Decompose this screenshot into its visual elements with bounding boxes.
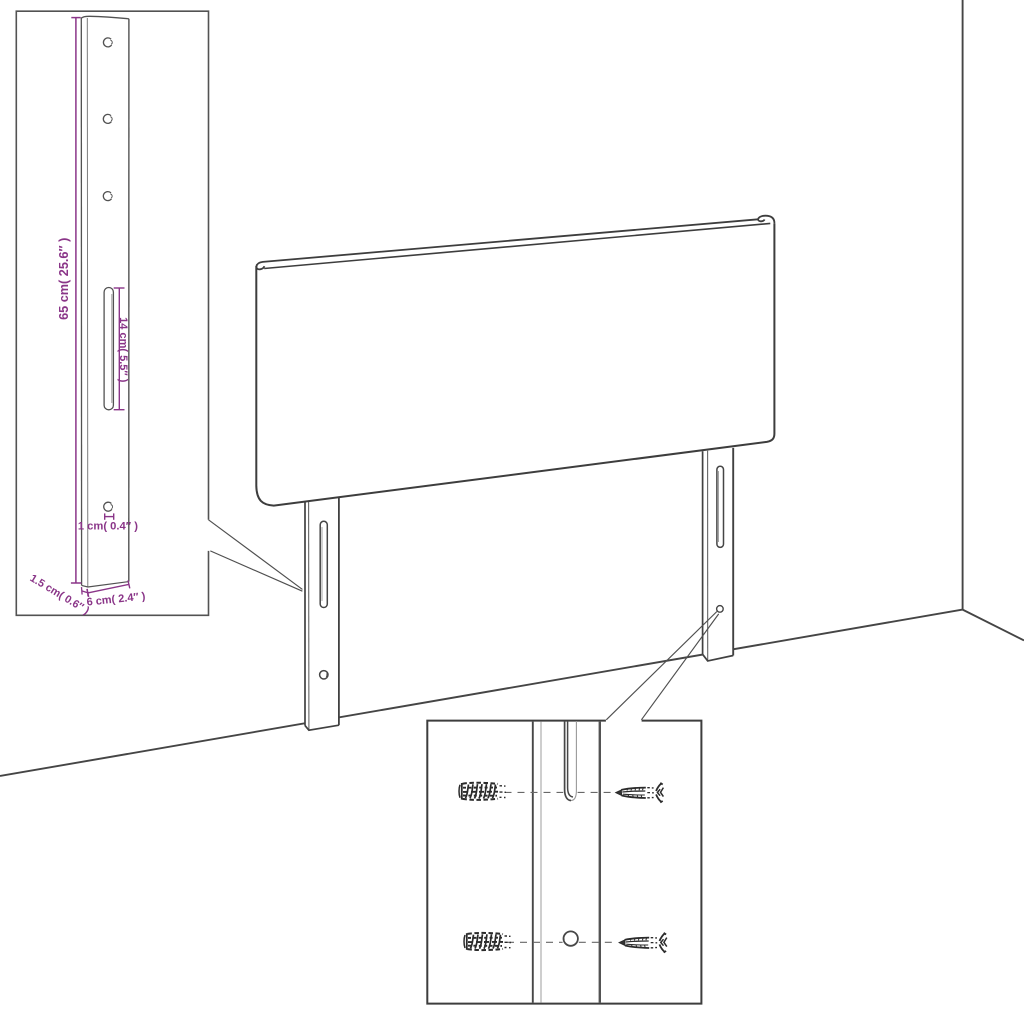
- svg-text:65 cm( 25.6″ ): 65 cm( 25.6″ ): [57, 238, 71, 320]
- svg-text:14 cm( 5.5″ ): 14 cm( 5.5″ ): [117, 317, 129, 383]
- svg-text:1 cm( 0.4″ ): 1 cm( 0.4″ ): [78, 521, 138, 533]
- svg-text:6 cm( 2.4″ ): 6 cm( 2.4″ ): [86, 591, 146, 609]
